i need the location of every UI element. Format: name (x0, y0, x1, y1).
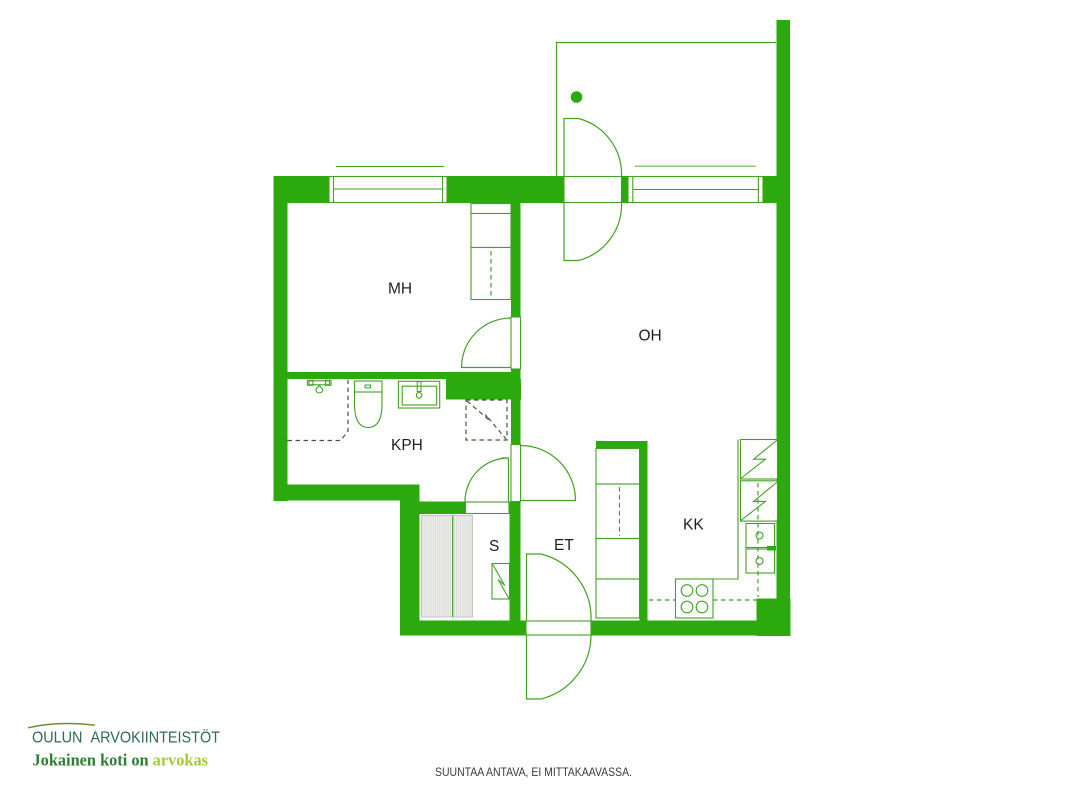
svg-text:MH: MH (388, 281, 412, 298)
svg-text:Jokainen koti on arvokas: Jokainen koti on arvokas (33, 751, 209, 770)
svg-text:KPH: KPH (391, 437, 423, 454)
svg-text:KK: KK (683, 517, 704, 534)
svg-text:OH: OH (639, 328, 662, 345)
svg-text:ET: ET (554, 537, 574, 554)
svg-text:OULUN ARVOKIINTEISTÖT: OULUN ARVOKIINTEISTÖT (32, 729, 220, 747)
svg-text:SUUNTAA ANTAVA, EI MITTAKAAVAS: SUUNTAA ANTAVA, EI MITTAKAAVASSA. (435, 766, 632, 779)
svg-text:S: S (489, 538, 499, 555)
